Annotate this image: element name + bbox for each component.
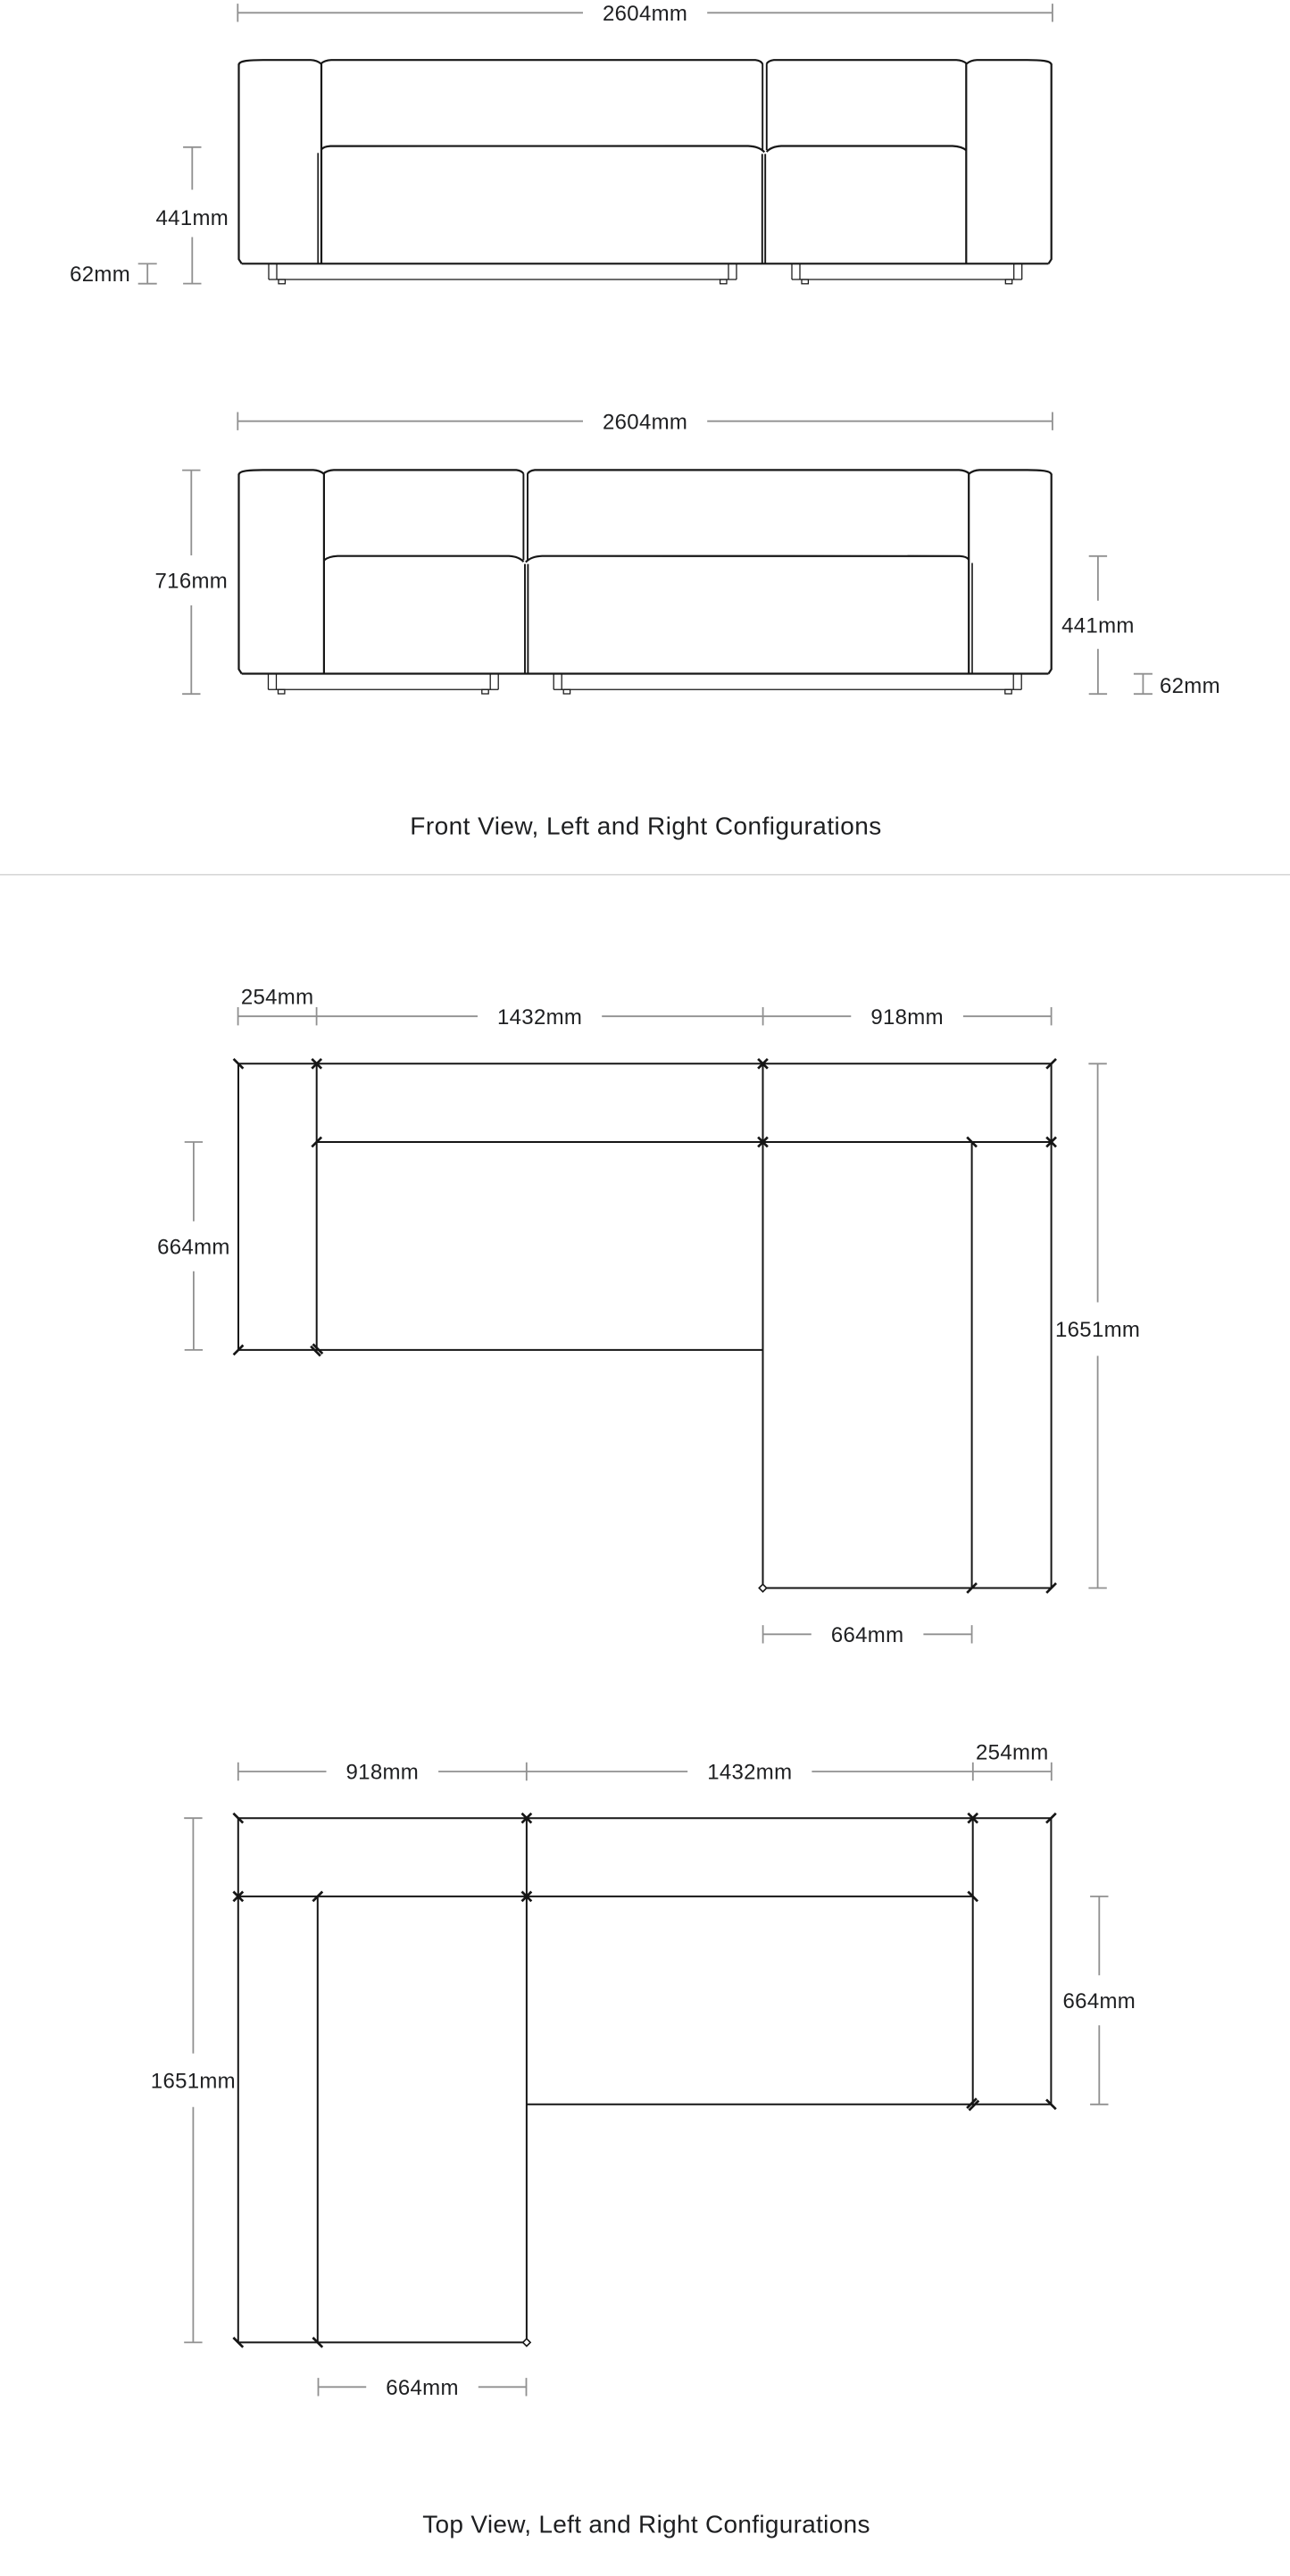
svg-text:716mm: 716mm	[155, 570, 229, 594]
svg-text:62mm: 62mm	[70, 263, 130, 287]
svg-text:62mm: 62mm	[1160, 674, 1220, 698]
svg-text:918mm: 918mm	[346, 1761, 420, 1785]
svg-text:2604mm: 2604mm	[603, 410, 687, 434]
svg-text:Top View, Left and Right Confi: Top View, Left and Right Configurations	[422, 2511, 870, 2538]
svg-text:664mm: 664mm	[157, 1235, 230, 1259]
svg-text:Front View, Left and Right Con: Front View, Left and Right Configuration…	[410, 813, 881, 840]
svg-text:918mm: 918mm	[870, 1005, 944, 1030]
svg-text:254mm: 254mm	[976, 1741, 1049, 1765]
svg-text:664mm: 664mm	[386, 2376, 459, 2400]
svg-text:1432mm: 1432mm	[707, 1761, 792, 1785]
svg-text:664mm: 664mm	[1063, 1989, 1136, 2013]
svg-text:1651mm: 1651mm	[151, 2069, 236, 2093]
svg-text:254mm: 254mm	[241, 986, 314, 1010]
svg-text:664mm: 664mm	[831, 1623, 904, 1647]
svg-text:1432mm: 1432mm	[497, 1005, 582, 1030]
svg-text:441mm: 441mm	[1061, 613, 1135, 638]
svg-text:441mm: 441mm	[156, 206, 229, 230]
svg-text:1651mm: 1651mm	[1055, 1318, 1140, 1342]
svg-text:2604mm: 2604mm	[603, 2, 687, 26]
